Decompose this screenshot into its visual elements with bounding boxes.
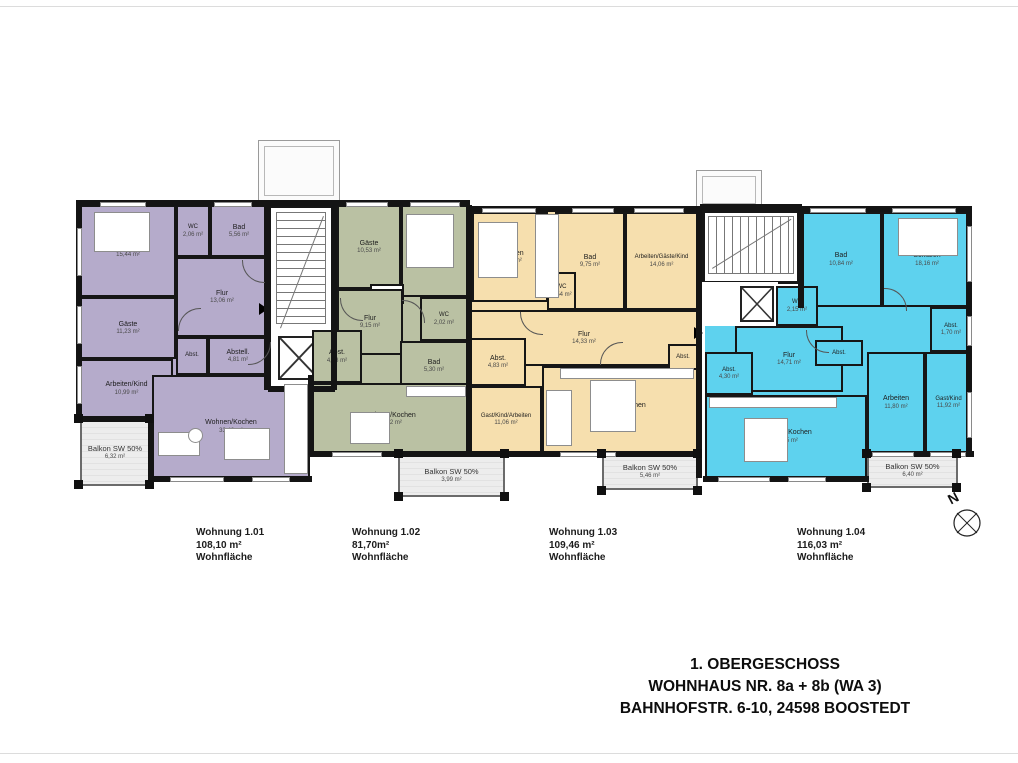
window: [892, 208, 956, 213]
window: [332, 452, 382, 457]
wall-segment: [331, 205, 337, 390]
wall-segment: [466, 205, 472, 455]
title-line-floor: 1. OBERGESCHOSS: [600, 654, 930, 676]
title-block: 1. OBERGESCHOSS WOHNHAUS NR. 8a + 8b (WA…: [600, 654, 930, 720]
wall-segment: [148, 416, 154, 482]
room-102-abst: Abst.4,88 m²: [312, 330, 362, 383]
window: [77, 306, 82, 344]
window: [872, 452, 914, 457]
window: [560, 452, 616, 457]
wall-segment: [264, 205, 270, 390]
balcony-post: [952, 449, 961, 458]
room-101-gaeste: Gäste11,23 m²: [80, 297, 176, 359]
title-line-building: WOHNHAUS NR. 8a + 8b (WA 3): [600, 676, 930, 698]
north-label: N: [945, 489, 961, 508]
window: [346, 202, 388, 207]
balcony-post: [145, 480, 154, 489]
balcony-post: [500, 449, 509, 458]
furniture-table: [744, 418, 788, 462]
window: [810, 208, 866, 213]
window: [634, 208, 684, 213]
apartment-label-103: Wohnung 1.03 109,46 m² Wohnfläche: [549, 527, 617, 565]
room-103-abst: Abst.4,83 m²: [470, 338, 526, 386]
title-line-address: BAHNHOFSTR. 6-10, 24598 BOOSTEDT: [600, 698, 930, 720]
window: [170, 477, 224, 482]
furniture-table: [590, 380, 636, 432]
wall-segment: [76, 416, 152, 422]
window: [100, 202, 146, 207]
apartment-label-104: Wohnung 1.04 116,03 m² Wohnfläche: [797, 527, 865, 565]
furniture-table: [224, 428, 270, 460]
wall-segment: [308, 375, 314, 455]
window: [410, 202, 460, 207]
window: [967, 392, 972, 438]
page-edge-top: [0, 6, 1018, 7]
window: [572, 208, 614, 213]
window: [967, 316, 972, 346]
room-103-gast-kind-arbeiten: Gast/Kind/Arbeiten11,06 m²: [470, 386, 542, 453]
furniture-kitchen-counter: [709, 397, 837, 408]
room-104-gast-kind: Gast/Kind11,92 m²: [925, 352, 972, 453]
balcony-post: [597, 449, 606, 458]
room-103-arbeiten-gaeste-kind: Arbeiten/Gäste/Kind14,06 m²: [625, 212, 698, 310]
balcony-post: [862, 449, 871, 458]
furniture-bed: [94, 212, 150, 252]
window: [788, 477, 826, 482]
room-102-gaeste: Gäste10,53 m²: [337, 205, 401, 289]
stair-bulkhead-inner: [264, 146, 334, 196]
furniture-kitchen-counter: [406, 386, 466, 397]
furniture-wardrobe: [535, 214, 559, 298]
room-101-abst: Abst.: [176, 337, 208, 375]
balcony-post: [74, 480, 83, 489]
window: [967, 226, 972, 282]
room-103-abst-right: Abst.: [668, 344, 698, 370]
wall-segment: [700, 204, 802, 210]
window: [482, 208, 536, 213]
stair-bulkhead-1: [258, 140, 340, 202]
elevator-2: [740, 286, 774, 322]
room-101-bad: Bad5,56 m²: [210, 205, 268, 257]
furniture-bed: [406, 214, 454, 268]
room-104-arbeiten: Arbeiten11,80 m²: [867, 352, 925, 453]
room-101-wc: WC2,06 m²: [176, 205, 210, 257]
balcony-post: [862, 483, 871, 492]
furniture-bed: [478, 222, 518, 278]
apartment-label-101: Wohnung 1.01 108,10 m² Wohnfläche: [196, 527, 264, 565]
furniture-sofa: [546, 390, 572, 446]
apartment-label-102: Wohnung 1.02 81,70m² Wohnfläche: [352, 527, 420, 565]
room-103-balkon: Balkon SW 50%5,46 m²: [602, 453, 698, 490]
page-edge-bottom: [0, 753, 1018, 754]
balcony-post: [597, 486, 606, 495]
compass-icon: [952, 508, 982, 538]
stair-bulkhead-inner: [702, 176, 756, 204]
furniture-kitchen-counter: [560, 368, 694, 379]
furniture-kitchen-counter: [284, 384, 308, 474]
window: [214, 202, 252, 207]
north-arrow: N: [938, 490, 992, 548]
window: [718, 477, 770, 482]
window: [252, 477, 290, 482]
room-104-balkon: Balkon SW 50%6,40 m²: [867, 453, 958, 488]
furniture-bed: [898, 218, 958, 256]
balcony-post: [145, 414, 154, 423]
window: [77, 228, 82, 276]
wall-segment: [696, 210, 702, 478]
furniture-round-table: [188, 428, 203, 443]
window: [77, 366, 82, 404]
room-102-wc: WC2,02 m²: [420, 297, 468, 341]
balcony-post: [693, 449, 702, 458]
furniture-table: [350, 412, 390, 444]
wall-segment: [798, 206, 804, 308]
room-101-balkon: Balkon SW 50%6,32 m²: [80, 420, 150, 486]
balcony-post: [394, 492, 403, 501]
room-104-wc: WC2,15 m²: [776, 286, 818, 326]
balcony-post: [500, 492, 509, 501]
balcony-post: [693, 486, 702, 495]
elevator-x-icon: [742, 288, 772, 320]
room-104-abst-430: Abst.4,30 m²: [705, 352, 753, 395]
room-102-balkon: Balkon SW 50%3,99 m²: [398, 455, 505, 497]
balcony-post: [74, 414, 83, 423]
balcony-post: [394, 449, 403, 458]
